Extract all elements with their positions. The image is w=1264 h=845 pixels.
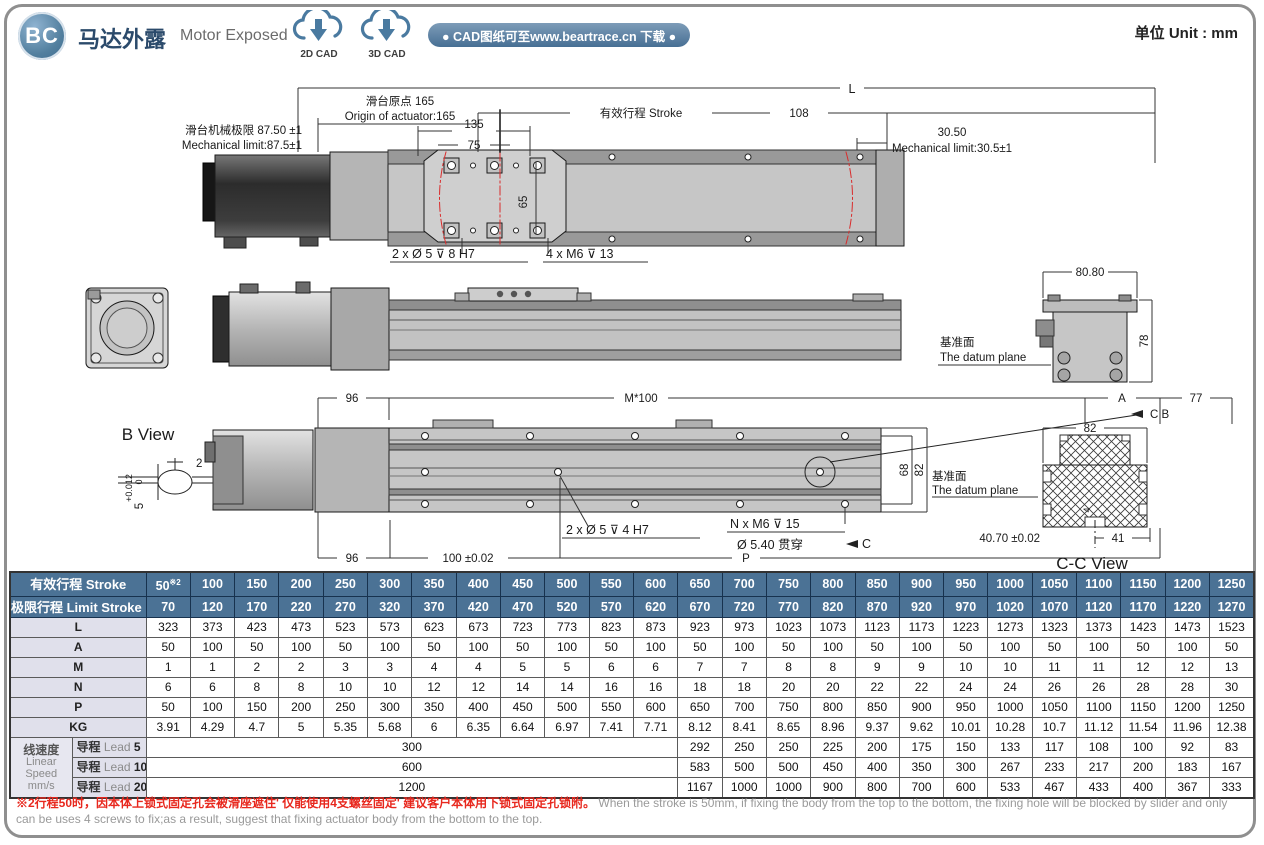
table-cell: 500 [766,758,810,778]
table-cell: 7.71 [633,718,677,738]
table-cell: 108 [1077,738,1121,758]
table-cell: 100 [1121,738,1165,758]
table-cell: 8.12 [678,718,722,738]
table-cell: 14 [545,678,589,698]
table-cell: 8 [235,678,279,698]
limit-header-cell: 420 [456,597,500,618]
limit-header-cell: 270 [323,597,367,618]
tol-upper: +0.012 [124,474,134,502]
row-label-p: P [10,698,146,718]
table-cell: 873 [633,618,677,638]
limit-header-cell: 1120 [1077,597,1121,618]
table-cell: 3.91 [146,718,190,738]
table-cell: 1423 [1121,618,1165,638]
table-cell: 6.64 [501,718,545,738]
limit-header-cell: 320 [368,597,412,618]
table-cell: 22 [899,678,943,698]
dim-41: 41 [1112,533,1125,545]
table-cell: 6.35 [456,718,500,738]
stroke-header-cell: 550 [589,572,633,597]
table-cell: 24 [988,678,1032,698]
table-cell: 150 [944,738,988,758]
table-cell: 1050 [1032,698,1076,718]
table-cell: 800 [811,698,855,718]
limit-header-cell: 970 [944,597,988,618]
stroke-header-cell: 1050 [1032,572,1076,597]
table-cell: 6 [633,658,677,678]
table-cell: 100 [545,638,589,658]
dim-40-70: 40.70 ±0.02 [979,533,1040,545]
table-row: 有效行程 Stroke50※21001502002503003504004505… [10,572,1254,597]
stroke-header-label: 有效行程 Stroke [10,572,146,597]
table-cell: 650 [678,698,722,718]
table-cell: 24 [944,678,988,698]
table-cell: 300 [368,698,412,718]
table-cell: 200 [1121,758,1165,778]
unit-label: 单位 Unit : mm [1135,22,1238,43]
table-cell: 500 [722,758,766,778]
table-cell: 292 [678,738,722,758]
table-cell: 28 [1121,678,1165,698]
table-cell: 950 [944,698,988,718]
stroke-header-cell: 500 [545,572,589,597]
dim-82: 82 [1084,423,1097,435]
table-cell: 10 [323,678,367,698]
table-cell: 100 [811,638,855,658]
table-row: L323373423473523573623673723773823873923… [10,618,1254,638]
table-cell: 723 [501,618,545,638]
stroke-header-cell: 150 [235,572,279,597]
callout-thru: Ø 5.40 贯穿 [737,537,803,552]
table-cell: 100 [190,638,234,658]
table-cell: 12 [1165,658,1209,678]
table-cell: 4.7 [235,718,279,738]
stroke-header-cell: 250 [323,572,367,597]
stroke-header-cell: 700 [722,572,766,597]
table-cell: 9 [855,658,899,678]
table-cell: 450 [501,698,545,718]
table-cell: 1523 [1210,618,1254,638]
table-cell: 18 [678,678,722,698]
table-cell: 50 [855,638,899,658]
dim-80-80: 80.80 [1076,267,1105,279]
table-cell: 10 [988,658,1032,678]
table-cell: 1200 [1165,698,1209,718]
stroke-header-cell: 350 [412,572,456,597]
table-cell: 1323 [1032,618,1076,638]
limit-header-cell: 820 [811,597,855,618]
section-label-c: C [862,537,871,551]
table-cell: 12 [456,678,500,698]
table-cell: 2 [235,658,279,678]
stroke-header-cell: 50※2 [146,572,190,597]
table-cell: 8.96 [811,718,855,738]
dim-82-rail: 82 [914,464,926,477]
table-cell: 450 [811,758,855,778]
limit-header-cell: 770 [766,597,810,618]
table-cell: 16 [589,678,633,698]
limit-header-cell: 720 [722,597,766,618]
technical-drawing: L 滑台原点 165 Origin of actuator:165 有效行程 S… [0,68,1264,573]
table-cell: 11.96 [1165,718,1209,738]
stroke-header-cell: 200 [279,572,323,597]
table-cell: 350 [899,758,943,778]
table-cell: 7 [678,658,722,678]
footnote: ※2行程50时，因本体上锁式固定孔会被滑座遮住' 仅能使用4支螺丝固定' 建议客… [16,795,1244,827]
table-cell: 1100 [1077,698,1121,718]
table-cell: 900 [899,698,943,718]
table-cell: 10 [944,658,988,678]
table-cell: 100 [279,638,323,658]
table-cell: 8 [766,658,810,678]
table-cell: 50 [501,638,545,658]
footnote-cn: ※2行程50时，因本体上锁式固定孔会被滑座遮住' 仅能使用4支螺丝固定' 建议客… [16,796,595,810]
limit-header-cell: 370 [412,597,456,618]
row-label-m: M [10,658,146,678]
table-cell: 6 [190,678,234,698]
table-cell: 600 [633,698,677,718]
table-cell: 150 [235,698,279,718]
table-cell: 22 [855,678,899,698]
table-cell: 3 [323,658,367,678]
table-cell: 1373 [1077,618,1121,638]
b-view-title: B View [122,425,175,444]
stroke-header-cell: 1150 [1121,572,1165,597]
table-cell: 7 [722,658,766,678]
table-cell: 6 [146,678,190,698]
callout-nxm6: N x M6 ⊽ 15 [730,517,800,531]
table-cell: 8.41 [722,718,766,738]
table-cell: 1 [146,658,190,678]
stroke-header-cell: 1200 [1165,572,1209,597]
table-cell: 9.37 [855,718,899,738]
limit-header-cell: 620 [633,597,677,618]
limit-header-cell: 520 [545,597,589,618]
limit-header-cell: 570 [589,597,633,618]
limit-header-cell: 1020 [988,597,1032,618]
merged-speed-cell: 600 [146,758,678,778]
table-cell: 100 [190,698,234,718]
table-cell: 7.41 [589,718,633,738]
table-cell: 50 [146,698,190,718]
table-cell: 16 [633,678,677,698]
dim-75: 75 [468,140,481,152]
dim-68: 68 [899,464,911,477]
stroke-header-cell: 450 [501,572,545,597]
table-cell: 50 [1121,638,1165,658]
table-cell: 50 [1032,638,1076,658]
dim-65: 65 [518,196,530,209]
callout-dowel: 2 x Ø 5 ⊽ 4 H7 [566,523,649,537]
table-cell: 30 [1210,678,1254,698]
mech-limit-left-cn: 滑台机械极限 87.50 ±1 [185,123,302,137]
table-cell: 3 [368,658,412,678]
page-title-en: Motor Exposed [180,27,288,45]
limit-header-cell: 1170 [1121,597,1165,618]
table-cell: 26 [1032,678,1076,698]
lead-label-5: 导程 Lead 5 [72,738,146,758]
table-cell: 117 [1032,738,1076,758]
merged-speed-cell: 300 [146,738,678,758]
table-cell: 8 [811,658,855,678]
table-cell: 8 [279,678,323,698]
table-cell: 267 [988,758,1032,778]
table-cell: 10 [368,678,412,698]
table-cell: 100 [988,638,1032,658]
limit-header-cell: 1070 [1032,597,1076,618]
origin-label-cn: 滑台原点 165 [366,94,434,108]
dim-96-bottom: 96 [346,553,359,565]
dim-100: 100 ±0.02 [442,553,493,565]
callout-counterbore: 2 x Ø 5 ⊽ 8 H7 [392,247,475,261]
table-cell: 923 [678,618,722,638]
dim-2: 2 [196,458,202,470]
table-cell: 50 [678,638,722,658]
table-cell: 100 [456,638,500,658]
table-cell: 9.62 [899,718,943,738]
stroke-footnote-marker: ※2 [170,578,181,587]
limit-header-cell: 70 [146,597,190,618]
table-cell: 100 [1077,638,1121,658]
cad-website-banner[interactable]: ● CAD图纸可至www.beartrace.cn 下载 ● [428,23,690,47]
mech-limit-left-en: Mechanical limit:87.5±1 [182,140,302,152]
stroke-header-cell: 600 [633,572,677,597]
table-cell: 583 [678,758,722,778]
table-cell: 50 [323,638,367,658]
stroke-header-cell: 850 [855,572,899,597]
datum2-cn: 基准面 [932,470,967,483]
table-cell: 200 [279,698,323,718]
table-cell: 100 [368,638,412,658]
stroke-header-cell: 650 [678,572,722,597]
table-cell: 10.01 [944,718,988,738]
table-cell: 323 [146,618,190,638]
stroke-header-cell: 1100 [1077,572,1121,597]
stroke-header-cell: 300 [368,572,412,597]
table-cell: 750 [766,698,810,718]
dim-4: 4 [1082,507,1092,512]
row-label-n: N [10,678,146,698]
table-cell: 5.35 [323,718,367,738]
stroke-header-cell: 950 [944,572,988,597]
table-row: N668810101212141416161818202022222424262… [10,678,1254,698]
mech-limit-right-en: Mechanical limit:30.5±1 [892,143,1012,155]
dim-77: 77 [1190,393,1203,405]
table-cell: 1473 [1165,618,1209,638]
table-cell: 1273 [988,618,1032,638]
stroke-header-cell: 100 [190,572,234,597]
stroke-header-cell: 800 [811,572,855,597]
origin-label-en: Origin of actuator:165 [345,111,456,123]
table-cell: 250 [722,738,766,758]
b-view-labels: B View 2 5 +0.012 0 [122,425,203,509]
table-cell: 6 [589,658,633,678]
table-cell: 200 [855,738,899,758]
table-cell: 573 [368,618,412,638]
limit-header-cell: 470 [501,597,545,618]
table-cell: 28 [1165,678,1209,698]
table-cell: 400 [855,758,899,778]
dim-78: 78 [1139,335,1151,348]
table-cell: 50 [944,638,988,658]
table-cell: 50 [1210,638,1254,658]
table-cell: 1073 [811,618,855,638]
table-cell: 1250 [1210,698,1254,718]
table-row: 线速度LinearSpeedmm/s导程 Lead 53002922502502… [10,738,1254,758]
dim-5: 5 [134,503,146,509]
cad-2d-download[interactable]: 2D CAD [288,10,350,60]
table-cell: 92 [1165,738,1209,758]
table-cell: 26 [1077,678,1121,698]
b-view-drawing [118,458,228,500]
table-cell: 250 [766,738,810,758]
table-cell: 423 [235,618,279,638]
cloud-download-icon [358,10,416,46]
cc-view-drawing [1043,435,1147,548]
dim-A: A [1118,393,1126,405]
table-cell: 250 [323,698,367,718]
stroke-header-cell: 400 [456,572,500,597]
table-cell: 5.68 [368,718,412,738]
table-cell: 5 [279,718,323,738]
tol-lower: 0 [134,479,144,484]
table-cell: 823 [589,618,633,638]
page-title: 马达外露 [78,22,166,54]
row-label-l: L [10,618,146,638]
limit-header-cell: 870 [855,597,899,618]
table-cell: 373 [190,618,234,638]
table-cell: 500 [545,698,589,718]
side-view-drawing [86,282,1137,382]
table-cell: 400 [456,698,500,718]
table-cell: 9 [899,658,943,678]
cad-3d-label: 3D CAD [356,49,418,60]
datum2-en: The datum plane [932,485,1018,497]
table-cell: 50 [235,638,279,658]
stroke-spec-table: 有效行程 Stroke50※21001502002503003504004505… [9,571,1255,799]
table-cell: 133 [988,738,1032,758]
table-cell: 473 [279,618,323,638]
table-cell: 1000 [988,698,1032,718]
table-cell: 673 [456,618,500,638]
table-cell: 12 [412,678,456,698]
table-row: 导程 Lead 10600583500500450400350300267233… [10,758,1254,778]
table-cell: 175 [899,738,943,758]
table-cell: 550 [589,698,633,718]
table-cell: 5 [545,658,589,678]
dim-108: 108 [789,108,808,120]
cad-3d-download[interactable]: 3D CAD [356,10,418,60]
table-cell: 10.7 [1032,718,1076,738]
table-cell: 1023 [766,618,810,638]
row-label-a: A [10,638,146,658]
table-cell: 50 [146,638,190,658]
cloud-download-icon [290,10,348,46]
limit-header-cell: 1220 [1165,597,1209,618]
stroke-header-cell: 750 [766,572,810,597]
limit-header-cell: 220 [279,597,323,618]
table-cell: 973 [722,618,766,638]
table-row: A501005010050100501005010050100501005010… [10,638,1254,658]
limit-header-cell: 670 [678,597,722,618]
table-cell: 1150 [1121,698,1165,718]
table-cell: 850 [855,698,899,718]
table-cell: 11 [1077,658,1121,678]
limit-header-cell: 120 [190,597,234,618]
datum-plane-cn: 基准面 [940,336,975,349]
dim-L: L [849,82,856,96]
limit-header-label: 极限行程 Limit Stroke (±1) [10,597,146,618]
table-row: M11223344556677889910101111121213 [10,658,1254,678]
table-cell: 100 [633,638,677,658]
table-cell: 225 [811,738,855,758]
table-cell: 14 [501,678,545,698]
table-cell: 523 [323,618,367,638]
stroke-label: 有效行程 Stroke [600,106,682,120]
table-cell: 50 [589,638,633,658]
top-view-drawing [203,110,904,248]
table-row: 极限行程 Limit Stroke (±1)701201702202703203… [10,597,1254,618]
limit-header-cell: 170 [235,597,279,618]
table-cell: 773 [545,618,589,638]
mech-limit-right-val: 30.50 [938,127,967,139]
table-cell: 1 [190,658,234,678]
specification-table: 有效行程 Stroke50※21001502002503003504004505… [9,571,1255,799]
table-cell: 300 [944,758,988,778]
table-cell: 83 [1210,738,1254,758]
table-cell: 8.65 [766,718,810,738]
dim-P: P [742,553,750,565]
speed-group-label: 线速度LinearSpeedmm/s [10,738,72,799]
table-cell: 700 [722,698,766,718]
cad-2d-label: 2D CAD [288,49,350,60]
datum-plane-en: The datum plane [940,352,1026,364]
table-cell: 1173 [899,618,943,638]
table-cell: 50 [412,638,456,658]
table-cell: 350 [412,698,456,718]
table-row: KG3.914.294.755.355.6866.356.646.977.417… [10,718,1254,738]
callout-tap: 4 x M6 ⊽ 13 [546,247,614,261]
table-cell: 4 [456,658,500,678]
series-badge: BC [18,12,66,60]
stroke-header-cell: 900 [899,572,943,597]
table-cell: 1123 [855,618,899,638]
table-cell: 4.29 [190,718,234,738]
table-cell: 18 [722,678,766,698]
table-cell: 1223 [944,618,988,638]
table-cell: 100 [722,638,766,658]
stroke-header-cell: 1000 [988,572,1032,597]
header: BC 马达外露 Motor Exposed 2D CAD 3D CAD ● CA… [0,0,1264,70]
table-cell: 233 [1032,758,1076,778]
dim-135: 135 [464,119,483,131]
table-cell: 100 [1165,638,1209,658]
table-cell: 100 [899,638,943,658]
table-cell: 4 [412,658,456,678]
table-cell: 10.28 [988,718,1032,738]
row-label-kg: KG [10,718,146,738]
table-cell: 6 [412,718,456,738]
table-cell: 50 [766,638,810,658]
table-cell: 12 [1121,658,1165,678]
section-label-cb: C B [1150,409,1170,421]
table-cell: 11 [1032,658,1076,678]
table-row: P501001502002503003504004505005506006507… [10,698,1254,718]
table-cell: 167 [1210,758,1254,778]
lead-label-10: 导程 Lead 10 [72,758,146,778]
dim-96-top: 96 [346,393,359,405]
stroke-header-cell: 1250 [1210,572,1254,597]
